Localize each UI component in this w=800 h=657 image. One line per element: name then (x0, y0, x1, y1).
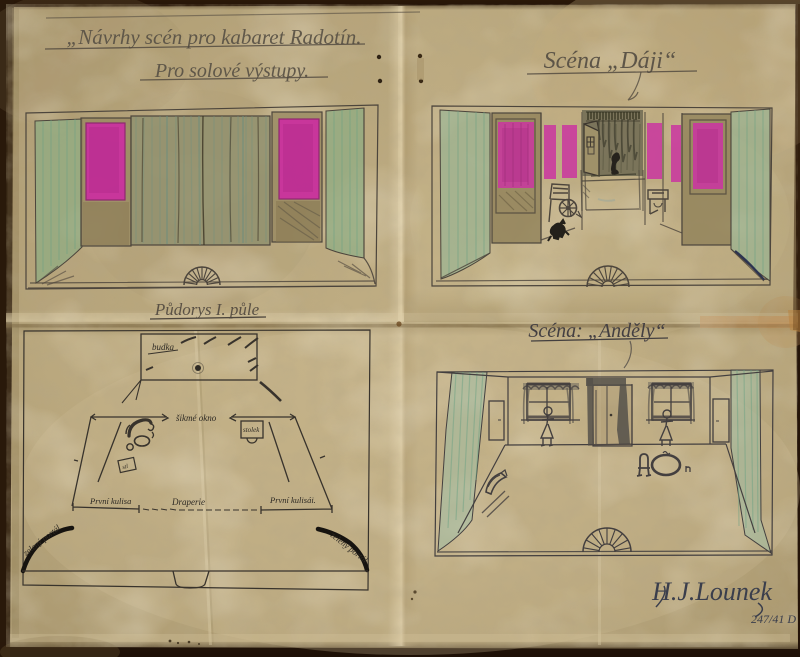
svg-text:H.J.Lounek: H.J.Lounek (651, 577, 772, 606)
svg-text:První kulisái.: První kulisái. (269, 495, 316, 505)
svg-text:„Návrhy scén pro kabaret Radot: „Návrhy scén pro kabaret Radotín. (67, 25, 362, 49)
svg-text:První kulisa: První kulisa (89, 496, 131, 506)
svg-text:247/41 D: 247/41 D (751, 612, 796, 626)
svg-text:šikmé okno: šikmé okno (176, 413, 217, 423)
svg-text:stolek: stolek (243, 426, 260, 434)
svg-text:Scéna „Dáji“: Scéna „Dáji“ (544, 48, 677, 74)
svg-text:Půdorys I. půle: Půdorys I. půle (154, 300, 260, 319)
svg-text:Draperie: Draperie (171, 497, 205, 507)
